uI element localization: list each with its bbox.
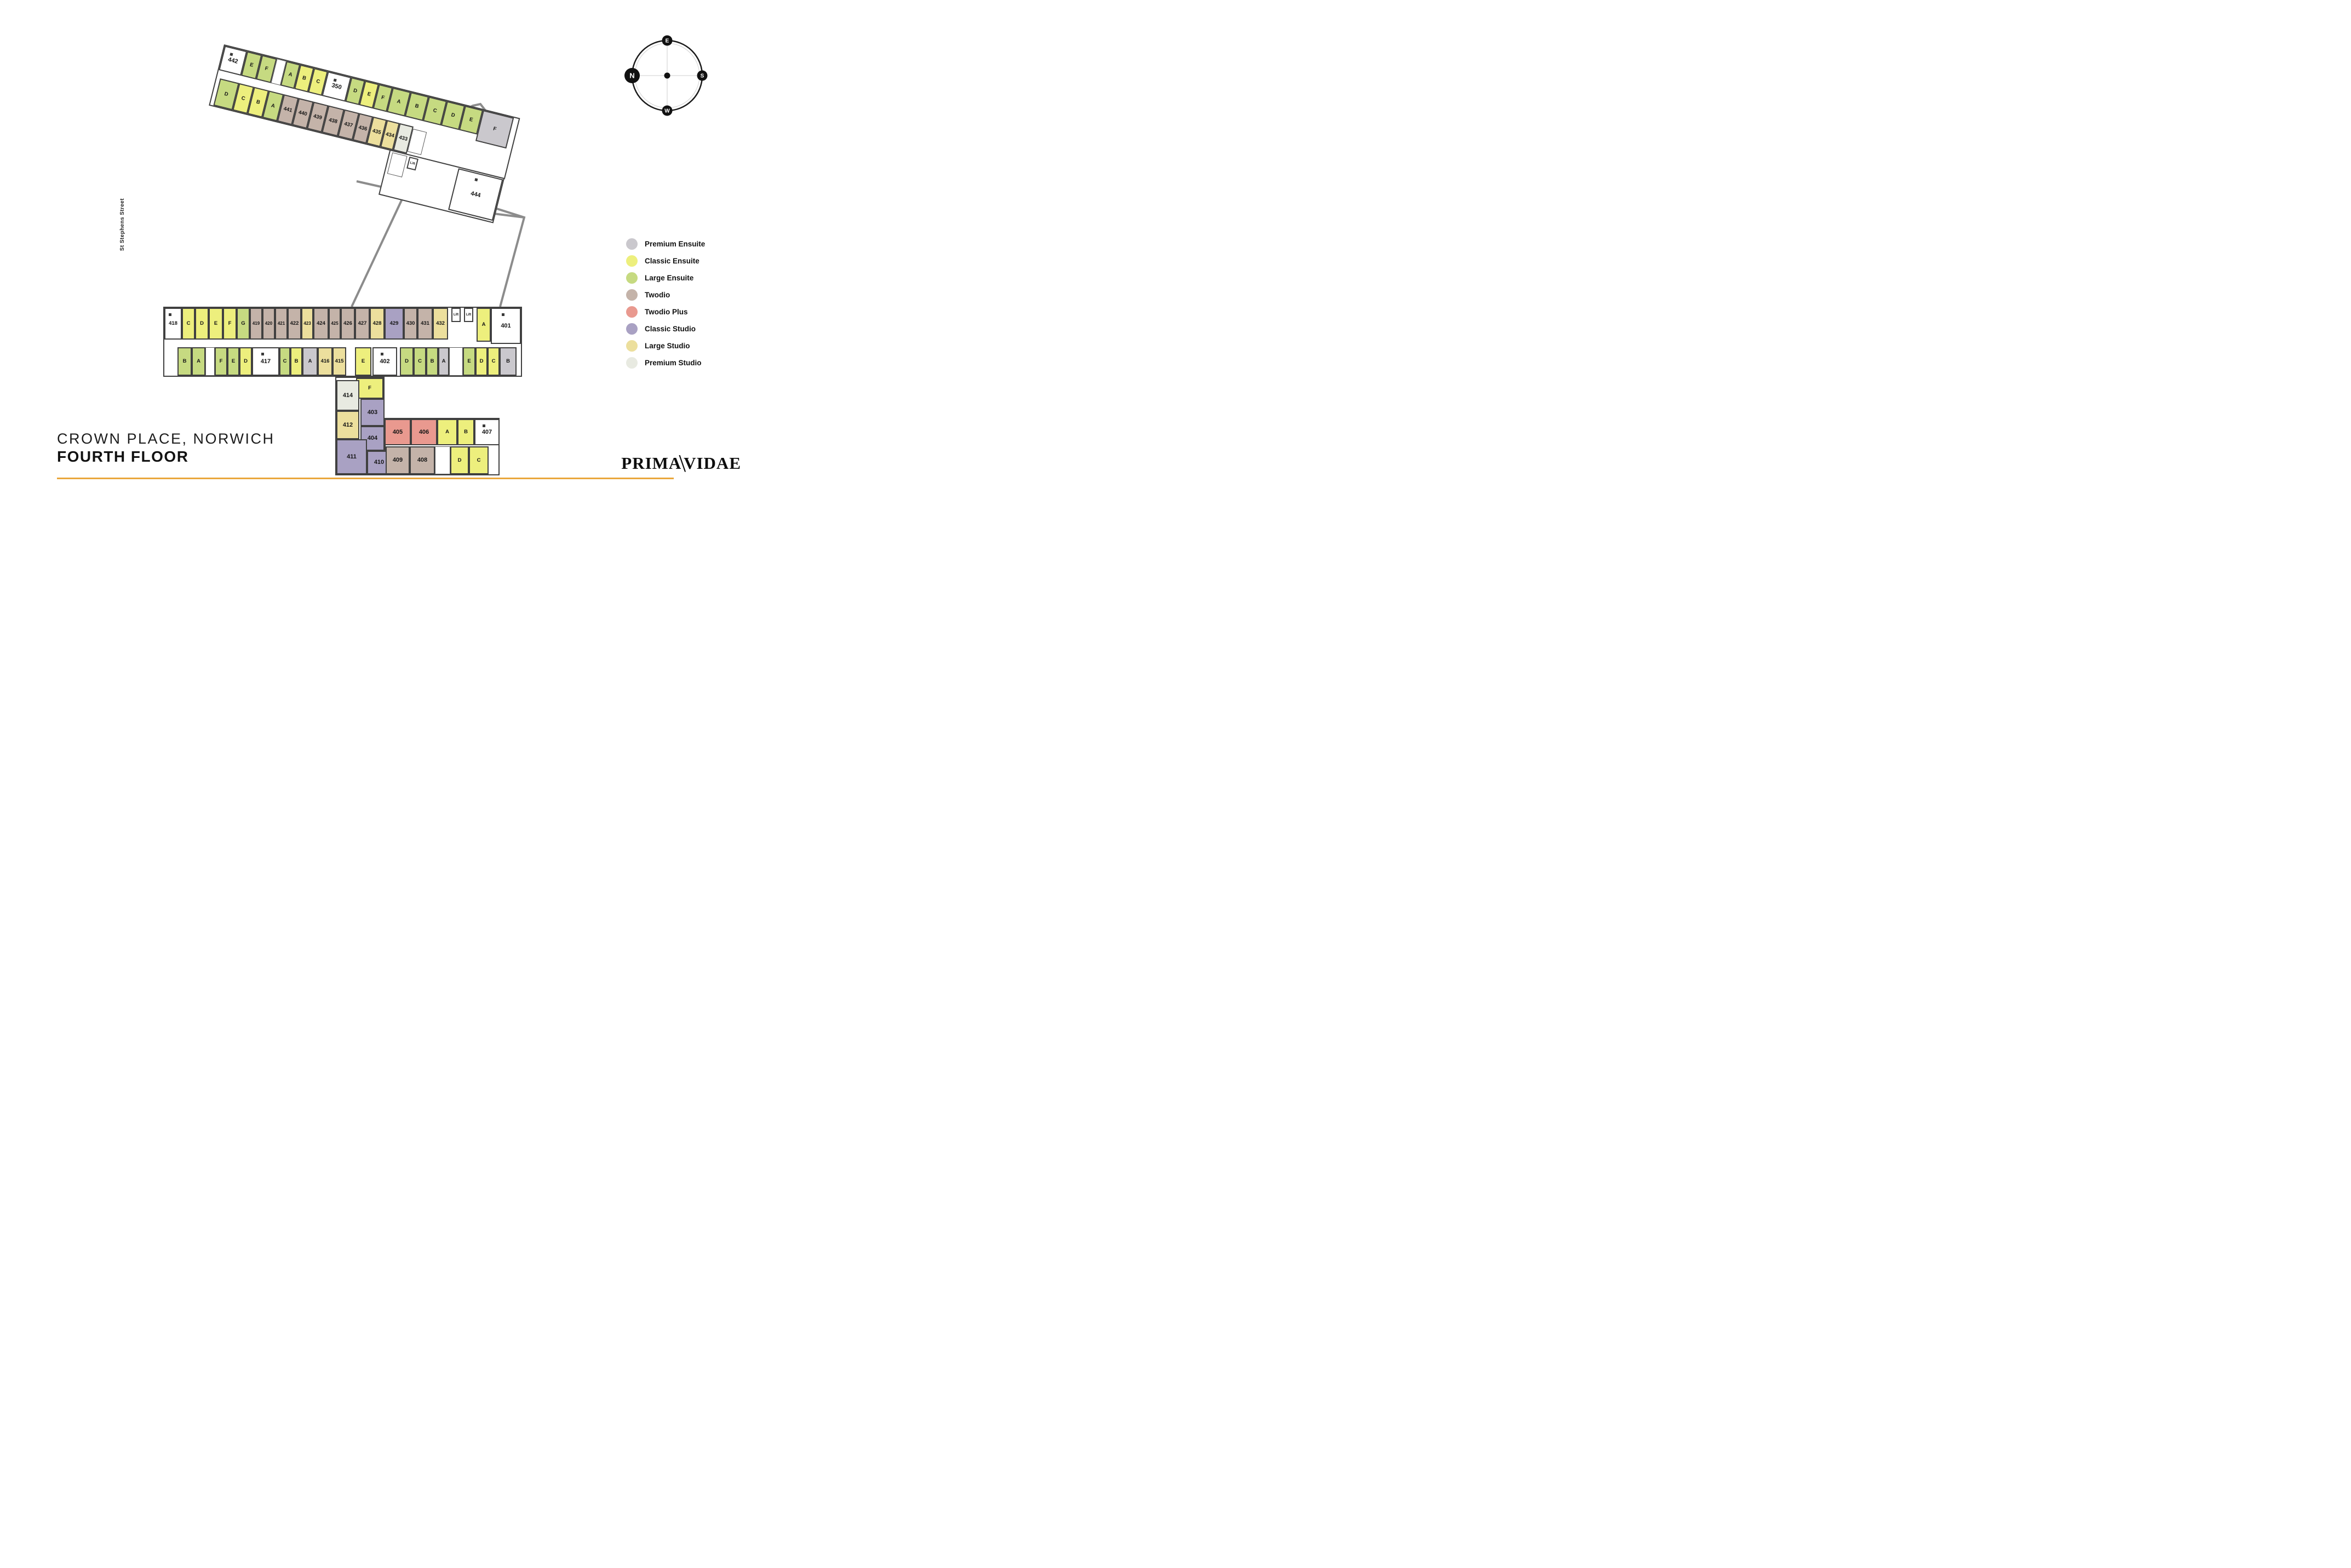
room-label: D <box>224 91 229 97</box>
room-label: E <box>214 321 217 326</box>
svg-text:N: N <box>629 72 634 80</box>
room-label: 436 <box>358 125 368 132</box>
room-407: 407 <box>474 419 500 445</box>
legend-item-twodio: Twodio <box>626 286 705 303</box>
room-label: C <box>477 458 481 463</box>
floor-title: FOURTH FLOOR <box>57 448 188 466</box>
room-430: 430 <box>404 308 417 340</box>
room-label: E <box>249 62 254 68</box>
column-mark <box>169 313 171 316</box>
room-E: E <box>355 347 371 376</box>
room-label: 434 <box>385 131 395 139</box>
legend-label: Twodio <box>645 291 670 299</box>
room-label: 421 <box>278 321 285 326</box>
room-B: B <box>426 347 438 376</box>
room-label: 350 <box>331 82 342 90</box>
room-F: F <box>356 378 383 399</box>
room-A: A <box>192 347 205 376</box>
room-label: 408 <box>417 457 427 463</box>
room-label: A <box>482 322 486 328</box>
svg-text:S: S <box>701 73 704 79</box>
room-label: 444 <box>470 191 481 199</box>
room-426: 426 <box>341 308 355 340</box>
room-label: B <box>431 359 434 364</box>
legend-item-classic_studio: Classic Studio <box>626 320 705 337</box>
room-427: 427 <box>355 308 370 340</box>
legend-label: Classic Studio <box>645 325 696 333</box>
compass-point-west: W <box>662 106 673 116</box>
room-label: 428 <box>373 321 382 326</box>
svg-text:E: E <box>666 38 669 44</box>
room-label: 402 <box>380 359 389 365</box>
room-label: 416 <box>321 359 330 364</box>
column-mark <box>230 53 233 56</box>
room-416: 416 <box>318 347 332 376</box>
room-label: 432 <box>436 321 445 326</box>
room-label: D <box>405 359 409 364</box>
room-label: D <box>480 359 484 364</box>
room-B: B <box>290 347 302 376</box>
room-label: 425 <box>331 321 338 326</box>
room-D: D <box>400 347 414 376</box>
room-420: 420 <box>262 308 275 340</box>
legend-item-premium_studio: Premium Studio <box>626 354 705 371</box>
legend-color-dot <box>626 238 638 250</box>
room-D: D <box>450 446 469 474</box>
room-D: D <box>475 347 488 376</box>
svg-text:W: W <box>664 108 670 114</box>
legend-item-premium_ensuite: Premium Ensuite <box>626 236 705 252</box>
room-label: F <box>264 66 268 72</box>
room-G: G <box>237 308 250 340</box>
room-418: 418 <box>164 308 182 340</box>
column-mark <box>483 424 485 427</box>
room-label: 430 <box>406 321 415 326</box>
legend-item-twodio_plus: Twodio Plus <box>626 303 705 320</box>
compass-point-east: E <box>662 36 673 46</box>
stairwell <box>435 446 450 474</box>
stairwell <box>449 347 463 376</box>
site-outline-path <box>352 181 405 307</box>
compass-point-north: N <box>624 68 640 83</box>
room-429: 429 <box>385 308 404 340</box>
room-E: E <box>209 308 223 340</box>
column-mark <box>261 353 264 355</box>
room-label: B <box>506 359 510 364</box>
room-label: 417 <box>261 359 271 365</box>
room-label: C <box>283 359 287 364</box>
room-label: E <box>362 359 365 364</box>
room-label: E <box>467 359 471 364</box>
room-label: 440 <box>298 110 308 117</box>
compass-point-south: S <box>697 71 708 81</box>
room-419: 419 <box>250 308 262 340</box>
room-C: C <box>414 347 426 376</box>
room-label: 439 <box>313 113 323 120</box>
room-label: D <box>458 458 462 463</box>
legend-label: Large Studio <box>645 342 690 350</box>
room-403: 403 <box>360 399 385 426</box>
stairwell <box>205 347 215 376</box>
room-label: Lift <box>454 313 458 317</box>
room-label: E <box>469 117 473 123</box>
room-Lift: Lift <box>464 308 473 322</box>
room-415: 415 <box>332 347 346 376</box>
column-mark <box>334 78 337 82</box>
room-Lift: Lift <box>451 308 461 322</box>
room-D: D <box>239 347 252 376</box>
legend-label: Twodio Plus <box>645 308 688 316</box>
room-label: 410 <box>374 460 384 466</box>
room-label: D <box>244 359 248 364</box>
room-label: B <box>183 359 187 364</box>
room-428: 428 <box>370 308 385 340</box>
room-425: 425 <box>329 308 341 340</box>
room-421: 421 <box>275 308 288 340</box>
room-label: B <box>295 359 299 364</box>
legend-label: Classic Ensuite <box>645 257 699 265</box>
column-mark <box>381 353 383 355</box>
room-label: Lift <box>410 162 416 166</box>
room-A: A <box>438 347 449 376</box>
room-label: C <box>316 79 320 85</box>
brand-logo-left: PRIMA <box>621 453 681 473</box>
room-label: 419 <box>253 321 260 326</box>
room-label: 437 <box>343 121 353 128</box>
room-label: 442 <box>227 56 238 65</box>
room-E: E <box>227 347 239 376</box>
room-label: 401 <box>501 323 511 329</box>
room-label: 423 <box>303 321 311 326</box>
room-F: F <box>215 347 227 376</box>
room-405: 405 <box>385 419 411 445</box>
room-412: 412 <box>336 411 359 439</box>
legend-list: Premium EnsuiteClassic EnsuiteLarge Ensu… <box>626 236 705 371</box>
legend-label: Premium Ensuite <box>645 240 705 248</box>
room-label: 424 <box>317 321 325 326</box>
room-402: 402 <box>372 347 397 376</box>
room-label: 441 <box>283 106 293 113</box>
room-label: A <box>271 103 276 109</box>
legend-label: Large Ensuite <box>645 274 693 282</box>
room-408: 408 <box>410 446 435 474</box>
legend-color-dot <box>626 340 638 352</box>
room-B: B <box>457 419 474 445</box>
room-label: 406 <box>419 429 429 435</box>
room-label: 422 <box>290 321 299 326</box>
room-label: F <box>228 321 232 326</box>
room-label: B <box>302 76 307 82</box>
room-label: F <box>492 127 497 133</box>
room-423: 423 <box>301 308 313 340</box>
room-A: A <box>477 308 491 342</box>
legend-color-dot <box>626 306 638 318</box>
room-label: 404 <box>368 435 377 441</box>
room-E: E <box>463 347 475 376</box>
room-label: 438 <box>328 117 338 124</box>
room-label: C <box>241 95 246 101</box>
legend-color-dot <box>626 289 638 301</box>
brand-logo-right: VIDAE <box>684 453 741 473</box>
room-414: 414 <box>336 380 359 411</box>
room-label: 431 <box>421 321 429 326</box>
room-C: C <box>469 446 489 474</box>
room-label: C <box>432 108 437 114</box>
room-C: C <box>182 308 195 340</box>
room-label: F <box>220 359 223 364</box>
room-label: D <box>200 321 204 326</box>
room-label: 403 <box>368 410 377 416</box>
room-label: F <box>381 95 385 101</box>
room-401: 401 <box>491 308 521 344</box>
legend-item-large_ensuite: Large Ensuite <box>626 269 705 286</box>
room-label: 414 <box>343 393 353 399</box>
room-411: 411 <box>336 439 367 474</box>
column-mark <box>502 313 504 316</box>
room-label: 426 <box>343 321 352 326</box>
compass: E S W N <box>623 32 711 119</box>
legend-color-dot <box>626 357 638 369</box>
room-B: B <box>500 347 517 376</box>
room-label: G <box>241 321 245 326</box>
legend-label: Premium Studio <box>645 359 702 367</box>
room-label: E <box>232 359 235 364</box>
room-label: 433 <box>398 135 408 142</box>
room-label: 418 <box>169 321 177 326</box>
room-406: 406 <box>411 419 437 445</box>
legend-color-dot <box>626 323 638 335</box>
room-label: Lift <box>466 313 471 317</box>
room-F: F <box>223 308 237 340</box>
room-label: 405 <box>393 429 403 435</box>
gold-rule <box>57 478 674 479</box>
room-label: 427 <box>358 321 367 326</box>
room-label: 420 <box>265 321 272 326</box>
page-title: CROWN PLACE, NORWICH <box>57 430 275 447</box>
room-label: A <box>197 359 200 364</box>
legend-color-dot <box>626 272 638 284</box>
room-label: B <box>464 429 468 435</box>
room-label: A <box>288 72 293 78</box>
room-417: 417 <box>252 347 279 376</box>
room-label: D <box>450 113 455 119</box>
street-label: St Stephens Street <box>119 198 125 251</box>
legend-item-classic_ensuite: Classic Ensuite <box>626 252 705 269</box>
room-label: 415 <box>335 359 344 364</box>
room-A: A <box>302 347 318 376</box>
room-label: 407 <box>482 429 492 435</box>
room-label: A <box>397 99 402 105</box>
room-409: 409 <box>386 446 410 474</box>
room-label: 412 <box>343 422 353 428</box>
room-label: 411 <box>347 454 357 460</box>
room-label: A <box>442 359 446 364</box>
floorplan-page: 442EFABC350DEFABCDEFDCBA4414404394384374… <box>0 0 784 522</box>
brand-logo: PRIMA\VIDAE <box>621 453 741 473</box>
room-label: E <box>366 91 371 97</box>
room-label: D <box>353 88 358 94</box>
room-label: A <box>308 359 312 364</box>
column-mark <box>474 178 478 181</box>
room-label: C <box>492 359 496 364</box>
room-label: 435 <box>372 128 382 135</box>
room-B: B <box>177 347 192 376</box>
room-424: 424 <box>313 308 329 340</box>
room-C: C <box>279 347 290 376</box>
room-422: 422 <box>288 308 301 340</box>
room-label: A <box>445 429 449 435</box>
room-label: B <box>256 99 261 105</box>
room-label: B <box>415 104 420 110</box>
legend-item-large_studio: Large Studio <box>626 337 705 354</box>
room-label: C <box>418 359 422 364</box>
room-432: 432 <box>433 308 448 340</box>
room-A: A <box>437 419 457 445</box>
room-label: 429 <box>390 321 399 326</box>
legend-color-dot <box>626 255 638 267</box>
room-C: C <box>488 347 500 376</box>
compass-center-dot <box>664 73 670 79</box>
room-D: D <box>195 308 209 340</box>
room-label: C <box>187 321 191 326</box>
room-label: 409 <box>393 457 403 463</box>
room-431: 431 <box>417 308 433 340</box>
room-label: F <box>368 386 371 391</box>
